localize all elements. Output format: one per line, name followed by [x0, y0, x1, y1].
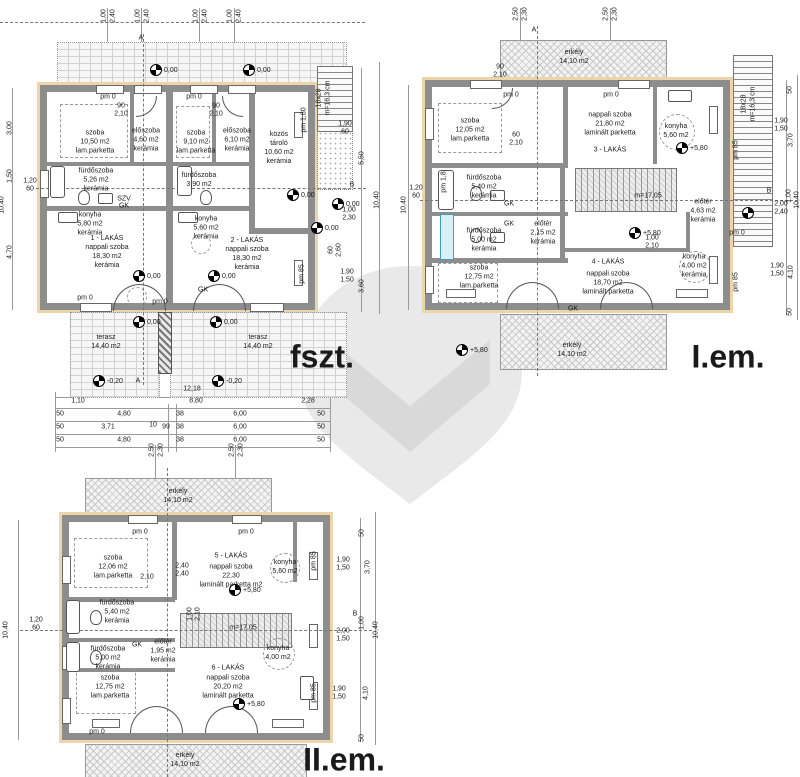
interior-wall — [130, 92, 134, 162]
party-wall — [166, 92, 173, 303]
level-icon — [332, 198, 344, 210]
dim-label-first: pm 85 — [733, 272, 740, 291]
window — [80, 303, 112, 312]
dimension-line — [797, 75, 798, 320]
dim-label-second: 10,40 — [3, 621, 10, 639]
dimension-line — [55, 447, 330, 448]
carpet-outline — [176, 106, 210, 158]
dim-label-second: B — [353, 611, 358, 618]
kitchen-table-icon — [270, 553, 300, 583]
window — [190, 85, 218, 94]
bathtub-icon — [66, 642, 80, 672]
carpet-outline — [76, 668, 136, 714]
dim-label-first: 50 — [787, 308, 794, 316]
dim-label-first: 1,50 — [770, 271, 784, 278]
dining-table-icon — [191, 234, 211, 254]
dim-label-first: 2,50 — [603, 7, 610, 21]
kitchen-table-icon — [263, 638, 295, 670]
dim-label-first: 3,70 — [788, 133, 795, 147]
terrace-top-hatch — [57, 42, 347, 87]
window — [62, 556, 71, 584]
window — [294, 260, 303, 286]
dim-table-label: 38 — [176, 411, 184, 418]
exterior-stairs — [733, 55, 773, 247]
floor-title-ground: fszt. — [290, 339, 354, 376]
dim-table-label: 8,80 — [189, 398, 203, 405]
window — [446, 289, 476, 298]
dim-table-label: 10 — [149, 422, 157, 429]
exterior-stairs — [317, 66, 353, 132]
dim-label-ground: 60 — [26, 186, 34, 193]
dimension-line — [55, 392, 56, 452]
level-marker-ground: 0,00 — [332, 198, 360, 210]
window — [128, 515, 158, 524]
dim-label-second: 1,90 — [332, 686, 346, 693]
interior-wall — [173, 206, 252, 211]
dim-label-second: 2,30 — [238, 443, 245, 457]
level-marker-ground: 0,00 — [311, 222, 339, 234]
dim-table-label: 50 — [56, 437, 64, 444]
dimension-line — [18, 520, 19, 740]
dimension-line — [55, 421, 330, 422]
dimension-line — [55, 408, 330, 409]
window — [425, 108, 434, 140]
window — [709, 106, 718, 134]
interior-wall — [69, 638, 175, 642]
window — [425, 266, 434, 294]
terrace-pillar — [158, 312, 172, 374]
window — [618, 80, 650, 89]
sink-icon — [490, 232, 505, 243]
window — [676, 289, 708, 298]
stair-landing — [317, 130, 353, 190]
window — [250, 303, 284, 312]
dimension-line — [375, 512, 376, 745]
dim-table-label: 4,80 — [117, 437, 131, 444]
dimension-line — [168, 404, 169, 452]
dim-label-ground: 2,60 — [336, 243, 343, 257]
dim-table-label: 6,00 — [233, 411, 247, 418]
storage-wall — [249, 228, 315, 234]
dimension-line — [176, 404, 177, 452]
interior-wall — [560, 168, 565, 258]
dim-table-label: 1,10 — [71, 398, 85, 405]
window — [294, 112, 303, 138]
window — [309, 552, 318, 580]
dim-label-first: A — [532, 27, 537, 34]
floor-title-second: II.em. — [303, 742, 385, 777]
dim-label-ground: 2,40 — [144, 9, 151, 23]
balcony-bottom-hatch — [500, 314, 667, 370]
sink-icon — [98, 193, 113, 204]
kitchen-counter-icon — [300, 676, 314, 700]
bathtub-icon — [66, 600, 80, 634]
level-value: 0,00 — [325, 225, 339, 232]
section-axis-b — [36, 188, 366, 189]
sink-icon — [490, 190, 505, 201]
window — [96, 85, 124, 94]
dim-label-ground: 1,20 — [23, 178, 37, 185]
kitchen-counter-icon — [668, 90, 692, 102]
section-axis-a — [143, 34, 144, 385]
section-axis-a — [537, 26, 538, 376]
window — [309, 624, 318, 648]
level-value: 0,00 — [346, 201, 360, 208]
dim-label-ground: 2,40 — [202, 9, 209, 23]
interior-wall — [432, 163, 568, 168]
dimension-line — [330, 392, 331, 452]
dimension-line — [55, 434, 330, 435]
dim-label-second: 2,00 — [336, 628, 350, 635]
dim-label-ground: 2,40 — [236, 9, 243, 23]
dimension-line — [361, 68, 362, 312]
balcony-top-hatch — [85, 478, 272, 517]
window — [92, 719, 120, 728]
kitchen-sink-icon — [58, 212, 78, 223]
interior-wall — [47, 206, 166, 211]
dim-label-second: 1,50 — [332, 694, 346, 701]
floorplan-sheet: fszt. I.em. II.em. szoba 10,50 m2 lam.pa… — [0, 0, 800, 777]
dim-table-label: 50 — [56, 411, 64, 418]
dim-label-ground: 5,50 — [359, 151, 366, 165]
storage-wall — [249, 92, 255, 232]
carpet-outline — [74, 538, 148, 588]
dim-label-ground: 1,00 — [342, 207, 356, 214]
floor-title-first: I.em. — [692, 339, 765, 376]
bathtub-icon — [50, 166, 65, 198]
dim-label-ground: 10,40 — [0, 196, 6, 214]
dim-label-first: 60 — [412, 193, 420, 200]
dim-label-first: 1,20 — [409, 185, 423, 192]
window — [272, 719, 304, 728]
wc-icon — [470, 228, 482, 243]
carpet-outline — [60, 104, 128, 158]
interior-wall — [69, 597, 175, 602]
wc-icon — [470, 186, 482, 201]
dim-table-label: 38 — [176, 437, 184, 444]
dimension-line — [379, 62, 380, 314]
dim-table-label: 50 — [56, 424, 64, 431]
dim-label-first: 10,40 — [401, 196, 408, 214]
interior-wall — [686, 212, 690, 252]
dim-label-first: 4,10 — [788, 265, 795, 279]
interior-wall — [172, 522, 177, 600]
dim-label-first: 2,30 — [522, 7, 529, 21]
bathtub-icon — [177, 166, 192, 196]
window — [40, 170, 49, 198]
kitchen-table-icon — [659, 114, 695, 150]
interior-stairs — [575, 168, 677, 212]
dim-table-label: 38 — [176, 424, 184, 431]
wc-icon — [90, 650, 102, 665]
window — [134, 85, 162, 94]
interior-wall — [212, 92, 216, 162]
balcony-top-hatch — [500, 40, 667, 83]
kitchen-table-icon — [679, 251, 711, 283]
interior-wall — [653, 87, 657, 164]
dim-table-label: 4,80 — [117, 411, 131, 418]
dim-label-first: 50 — [787, 86, 794, 94]
balcony-bottom-hatch — [85, 744, 307, 777]
dim-table-label: 3,71 — [101, 424, 115, 431]
dim-label-second: 1,50 — [336, 565, 350, 572]
dim-label-first: 1,90 — [770, 263, 784, 270]
interior-wall — [563, 87, 568, 164]
interior-wall — [47, 162, 166, 166]
dim-label-second: 3,70 — [365, 560, 372, 574]
interior-wall — [560, 248, 690, 252]
dim-label-second: 10,40 — [373, 621, 380, 639]
dim-label-second: 1,50 — [336, 636, 350, 643]
bathtub-icon — [438, 170, 454, 210]
dim-label-first: 2,50 — [513, 7, 520, 21]
dimension-line — [12, 88, 13, 310]
facade-axis — [0, 22, 365, 23]
carpet-outline — [438, 103, 502, 153]
dim-label-ground: 1,00 — [227, 9, 234, 23]
dim-label-ground: 2,30 — [342, 215, 356, 222]
highlighted-bathtub — [440, 214, 454, 260]
dim-label-ground: 60 — [328, 246, 335, 254]
wc-icon — [200, 190, 212, 205]
window — [232, 515, 262, 524]
dimension-line — [408, 85, 409, 310]
dim-label-second: 4,10 — [363, 686, 370, 700]
dim-label-second: 1,90 — [336, 557, 350, 564]
wc-icon — [90, 610, 102, 625]
dimension-line — [786, 80, 787, 315]
dim-table-label: 6,00 — [233, 437, 247, 444]
window — [62, 698, 71, 724]
window — [228, 85, 256, 94]
dim-table-label: 6,00 — [233, 424, 247, 431]
wc-icon — [78, 190, 90, 205]
dim-label-second: 1,20 — [29, 617, 43, 624]
dim-label-first: 2,30 — [612, 7, 619, 21]
dim-label-second: 2,30 — [158, 443, 165, 457]
kitchen-sink-icon — [178, 212, 198, 223]
dim-label-ground: 2,40 — [110, 9, 117, 23]
terrace-left-hatch — [70, 312, 160, 398]
window — [709, 256, 718, 284]
